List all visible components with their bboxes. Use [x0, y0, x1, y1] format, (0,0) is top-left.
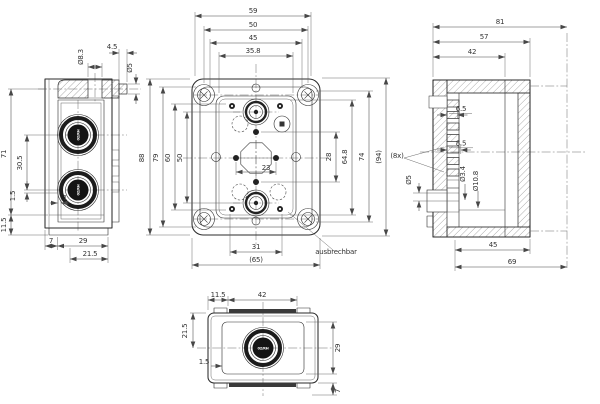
bottom-view: 02/RH 11.5 42 21.5 1.5 29 7 [181, 291, 342, 396]
dim-label: 30.5 [16, 156, 24, 171]
dim-label: 50 [176, 154, 184, 163]
dim-label: 79 [152, 154, 160, 163]
screw-boss [427, 188, 459, 212]
dim-label: 59 [249, 7, 258, 15]
knockout-strip [229, 383, 296, 388]
dim-label: Ø10.8 [472, 171, 480, 191]
dim-label: 11.5 [211, 291, 226, 299]
dim-label: 1.5 [9, 191, 17, 202]
side-view: 02/RH 02/RH Ø8.3 4.5 Ø5 [0, 43, 141, 263]
dim-label: 23 [262, 164, 271, 172]
dim-label: 60 [164, 154, 172, 163]
knockout-note: ausbrechbar [315, 248, 357, 256]
dim-label: 45 [489, 241, 498, 249]
dim-label: 8.5 [456, 140, 467, 148]
section-view: 81 57 42 6.5 8.5 Ø3.4 Ø10.8 [390, 18, 585, 271]
dim-label: 35.8 [246, 47, 261, 55]
dim-label: 64.8 [341, 150, 349, 165]
front-knockouts [229, 99, 290, 216]
dim-label: 29 [334, 344, 342, 353]
dim-label: 50 [249, 21, 258, 29]
dim-label: 7 [334, 389, 342, 393]
front-view: 59 50 45 35.8 88 79 60 50 [138, 7, 390, 269]
dim-label: 42 [258, 291, 267, 299]
dim-label: 7 [49, 237, 53, 245]
dim-label: 42 [468, 48, 477, 56]
technical-drawing: 02/RH 02/RH Ø8.3 4.5 Ø5 [0, 0, 600, 404]
dim-label: Ø8.3 [77, 49, 85, 65]
gland-marking: 02/RH [76, 129, 80, 140]
wall-step [429, 96, 447, 108]
brand-mark [280, 122, 285, 127]
dim-label: 1 [63, 194, 67, 202]
dim-label: 4.5 [107, 43, 118, 51]
count-label: (8x) [390, 152, 404, 160]
dim-label: 74 [358, 152, 366, 161]
gland-marking: 02/RH [257, 347, 268, 351]
dim-label: 31 [252, 243, 261, 251]
dim-label: 21.5 [83, 250, 98, 258]
dim-label: (94) [375, 150, 383, 164]
dim-label: 28 [325, 153, 333, 162]
gland-marking: 02/RH [76, 184, 80, 195]
mount-foot [427, 216, 433, 227]
drawing-canvas: 02/RH 02/RH Ø8.3 4.5 Ø5 [0, 0, 600, 404]
side-centerlines [38, 73, 141, 232]
dim-label: 57 [480, 33, 489, 41]
cover-phantom [530, 86, 567, 231]
dim-label: Ø5 [405, 175, 413, 185]
dim-label: 21.5 [181, 324, 189, 339]
knockout-strip [229, 309, 296, 314]
dim-label: 45 [249, 34, 258, 42]
dim-label: 88 [138, 154, 146, 163]
dim-label: 11.5 [0, 218, 8, 233]
dim-label: 69 [508, 258, 517, 266]
dim-label: 29 [79, 237, 88, 245]
dim-label: (65) [249, 256, 263, 264]
dim-label: 1.5 [199, 358, 210, 366]
dim-label: 81 [496, 18, 505, 26]
section-body [427, 80, 567, 237]
front-dimensions: 59 50 45 35.8 88 79 60 50 [138, 7, 390, 269]
dim-label: 71 [0, 150, 8, 159]
dim-label: Ø3.4 [459, 165, 467, 182]
dim-label: Ø5 [126, 63, 134, 73]
dim-label: 6.5 [456, 105, 467, 113]
side-body [45, 79, 119, 235]
